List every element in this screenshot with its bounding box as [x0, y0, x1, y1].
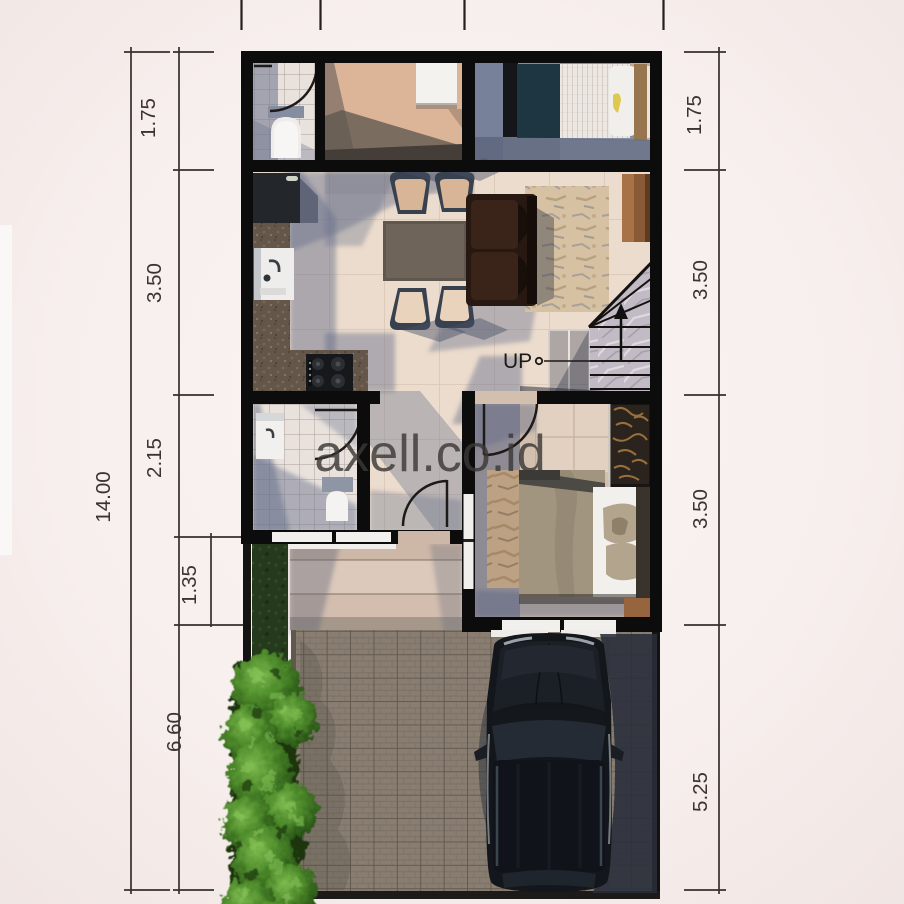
svg-text:axell.co.id: axell.co.id — [314, 425, 545, 483]
svg-text:UP: UP — [503, 350, 532, 373]
svg-text:1.35: 1.35 — [178, 565, 201, 605]
svg-text:1.75: 1.75 — [137, 98, 160, 138]
svg-text:3.50: 3.50 — [689, 489, 712, 529]
svg-text:5.25: 5.25 — [689, 772, 712, 812]
svg-text:6.60: 6.60 — [163, 712, 186, 752]
svg-text:2.15: 2.15 — [143, 438, 166, 478]
svg-text:3.50: 3.50 — [143, 263, 166, 303]
svg-text:3.50: 3.50 — [689, 260, 712, 300]
svg-text:14.00: 14.00 — [92, 471, 115, 522]
svg-text:1.75: 1.75 — [683, 95, 706, 135]
